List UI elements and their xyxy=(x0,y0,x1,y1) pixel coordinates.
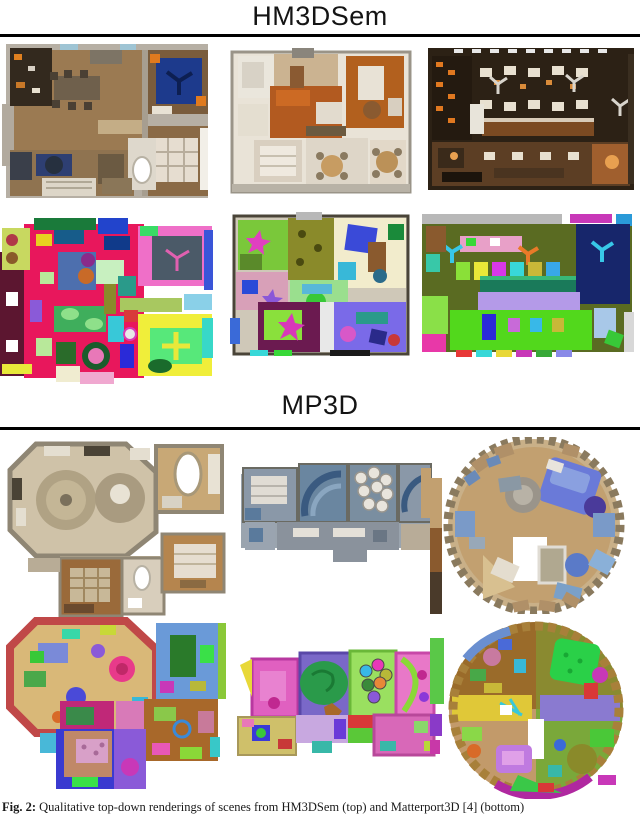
hm3dsem-semantic-scan-2-image xyxy=(230,210,414,360)
section-divider-mp3d xyxy=(0,427,640,430)
hm3dsem-rgb-scan-3-image xyxy=(424,44,638,196)
hm3dsem-rgb-scan-2-image xyxy=(230,46,412,196)
hm3dsem-semantic-scan-3 xyxy=(420,212,637,362)
section-title-hm3dsem: HM3DSem xyxy=(0,1,640,32)
mp3d-rgb-scan-1-image xyxy=(4,438,228,618)
mp3d-rgb-scan-3 xyxy=(443,437,626,614)
hm3dsem-rgb-scan-1-image xyxy=(2,42,214,200)
mp3d-rgb-scan-2-edge-strip xyxy=(430,478,442,614)
section-divider-hm3dsem xyxy=(0,34,640,37)
mp3d-rgb-scan-2-edge-strip-image xyxy=(430,478,442,614)
mp3d-rgb-scan-3-image xyxy=(443,437,626,614)
hm3dsem-semantic-scan-2 xyxy=(230,210,414,360)
figure-caption: Fig. 2: Qualitative top-down renderings … xyxy=(2,800,638,815)
hm3dsem-rgb-scan-3 xyxy=(424,44,638,196)
hm3dsem-semantic-scan-1-image xyxy=(0,214,215,388)
mp3d-rgb-scan-2 xyxy=(237,456,435,568)
hm3dsem-rgb-scan-1 xyxy=(2,42,214,200)
mp3d-semantic-scan-3 xyxy=(440,619,632,799)
mp3d-semantic-scan-2 xyxy=(228,645,438,761)
figure-caption-tag: Fig. 2: xyxy=(2,800,36,814)
hm3dsem-semantic-scan-3-image xyxy=(420,212,637,362)
figure-caption-text: Qualitative top-down renderings of scene… xyxy=(36,800,524,814)
section-title-mp3d: MP3D xyxy=(0,390,640,421)
mp3d-rgb-scan-2-image xyxy=(237,456,435,568)
mp3d-semantic-scan-1 xyxy=(4,617,228,791)
mp3d-semantic-scan-2-image xyxy=(228,645,438,761)
hm3dsem-rgb-scan-2 xyxy=(230,46,412,196)
mp3d-semantic-scan-3-image xyxy=(440,619,632,799)
mp3d-semantic-scan-1-image xyxy=(4,617,228,791)
hm3dsem-semantic-scan-1 xyxy=(0,214,215,388)
mp3d-rgb-scan-1 xyxy=(4,438,228,618)
